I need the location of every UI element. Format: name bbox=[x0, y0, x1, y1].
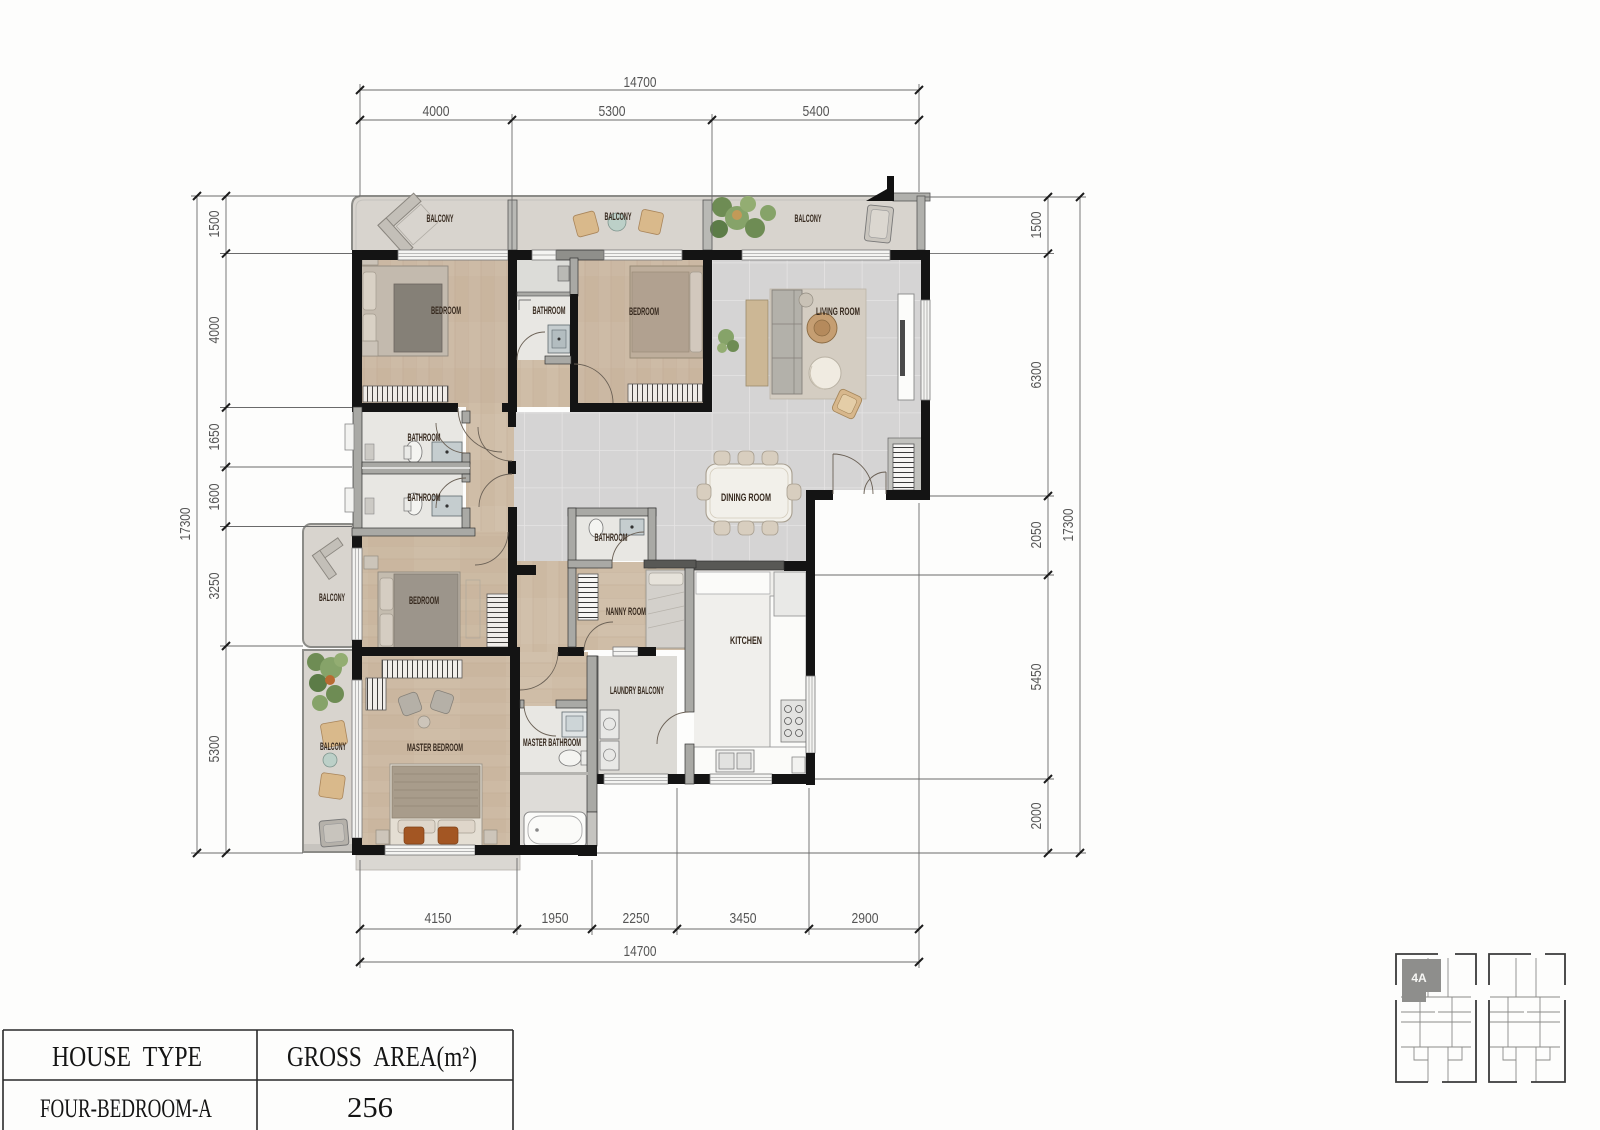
svg-text:4000: 4000 bbox=[206, 317, 223, 344]
svg-text:NANNY ROOM: NANNY ROOM bbox=[606, 606, 646, 618]
svg-text:256: 256 bbox=[347, 1093, 393, 1124]
svg-text:5300: 5300 bbox=[206, 736, 223, 763]
svg-text:2050: 2050 bbox=[1028, 522, 1045, 549]
svg-text:MASTER BEDROOM: MASTER BEDROOM bbox=[407, 742, 463, 754]
svg-text:3450: 3450 bbox=[730, 910, 757, 927]
svg-text:KITCHEN: KITCHEN bbox=[730, 635, 762, 647]
svg-text:4000: 4000 bbox=[423, 103, 450, 120]
svg-text:1950: 1950 bbox=[542, 910, 569, 927]
svg-text:BEDROOM: BEDROOM bbox=[431, 305, 461, 317]
svg-text:6300: 6300 bbox=[1028, 362, 1045, 389]
svg-text:1600: 1600 bbox=[206, 484, 223, 511]
svg-text:FOUR-BEDROOM-A: FOUR-BEDROOM-A bbox=[40, 1094, 212, 1123]
svg-text:2000: 2000 bbox=[1028, 803, 1045, 830]
svg-text:DINING ROOM: DINING ROOM bbox=[721, 492, 771, 504]
svg-text:5400: 5400 bbox=[803, 103, 830, 120]
svg-text:BATHROOM: BATHROOM bbox=[408, 432, 441, 444]
svg-text:17300: 17300 bbox=[1060, 509, 1077, 542]
svg-text:LIVING ROOM: LIVING ROOM bbox=[816, 306, 860, 318]
svg-text:4150: 4150 bbox=[425, 910, 452, 927]
svg-text:GROSS AREA(m²): GROSS AREA(m²) bbox=[287, 1042, 477, 1073]
svg-text:5450: 5450 bbox=[1028, 664, 1045, 691]
svg-text:1500: 1500 bbox=[1028, 212, 1045, 239]
svg-text:BATHROOM: BATHROOM bbox=[408, 492, 441, 504]
svg-text:BEDROOM: BEDROOM bbox=[409, 595, 439, 607]
svg-text:2250: 2250 bbox=[623, 910, 650, 927]
svg-text:BEDROOM: BEDROOM bbox=[629, 306, 659, 318]
svg-text:BALCONY: BALCONY bbox=[795, 213, 822, 225]
svg-text:BATHROOM: BATHROOM bbox=[595, 532, 628, 544]
svg-text:BALCONY: BALCONY bbox=[605, 211, 632, 223]
svg-text:BALCONY: BALCONY bbox=[427, 213, 454, 225]
svg-text:BALCONY: BALCONY bbox=[319, 592, 345, 604]
svg-text:5300: 5300 bbox=[599, 103, 626, 120]
svg-text:LAUNDRY BALCONY: LAUNDRY BALCONY bbox=[610, 685, 664, 697]
svg-text:HOUSE TYPE: HOUSE TYPE bbox=[52, 1042, 202, 1073]
svg-text:14700: 14700 bbox=[624, 943, 657, 960]
svg-text:BALCONY: BALCONY bbox=[320, 741, 346, 753]
svg-text:MASTER BATHROOM: MASTER BATHROOM bbox=[523, 737, 581, 749]
svg-text:BATHROOM: BATHROOM bbox=[533, 305, 566, 317]
svg-text:1650: 1650 bbox=[206, 424, 223, 451]
svg-text:17300: 17300 bbox=[177, 508, 194, 541]
svg-text:3250: 3250 bbox=[206, 573, 223, 600]
svg-text:1500: 1500 bbox=[206, 211, 223, 238]
svg-text:2900: 2900 bbox=[852, 910, 879, 927]
svg-text:14700: 14700 bbox=[624, 74, 657, 91]
svg-text:4A: 4A bbox=[1411, 971, 1427, 985]
